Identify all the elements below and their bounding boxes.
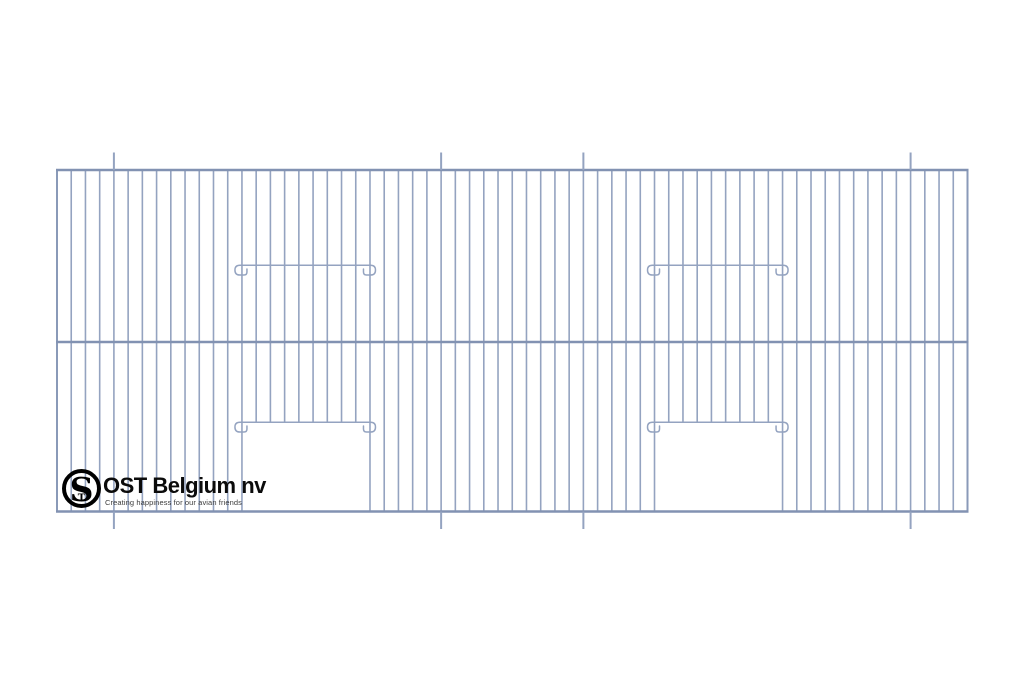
drawing-canvas: S T OST Belgium nv Creating happiness fo… — [0, 0, 1024, 683]
monogram-letter-t: T — [66, 494, 97, 504]
brand-name: OST Belgium nv — [103, 475, 266, 497]
brand-logo: S T OST Belgium nv Creating happiness fo… — [62, 469, 266, 508]
ost-monogram-icon: S T — [62, 469, 101, 508]
hooked-wire-bar — [648, 422, 789, 432]
wire-grid — [57, 170, 968, 512]
cage-front-drawing — [0, 0, 1024, 683]
brand-text: OST Belgium nv Creating happiness for ou… — [103, 469, 266, 507]
brand-tagline: Creating happiness for our avian friends — [105, 498, 266, 507]
door-opening — [656, 433, 781, 510]
hooked-wire-bar — [235, 422, 376, 432]
